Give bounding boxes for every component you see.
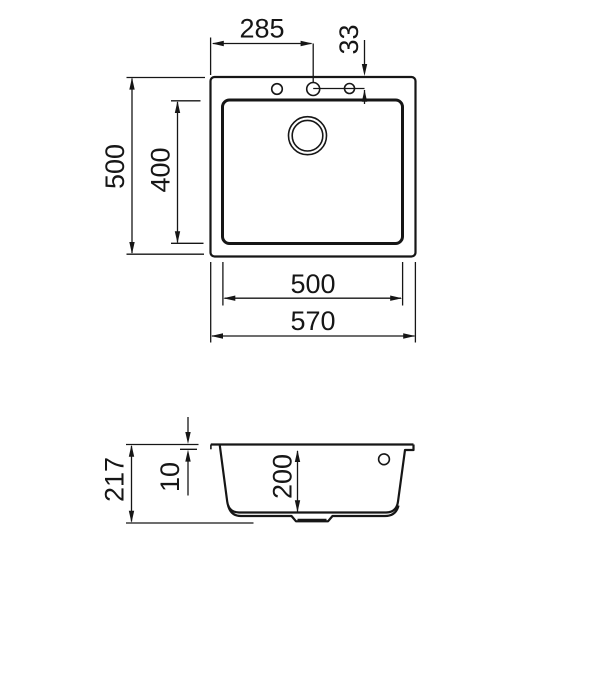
dimension-label-500-vertical: 500 (100, 144, 130, 189)
dimension-label-200: 200 (268, 454, 298, 499)
dimension-label-33: 33 (334, 24, 364, 54)
dimension-faucet-offset-y: 33 (334, 24, 367, 104)
drain-inner-circle (292, 120, 323, 151)
dimension-rim-thickness: 10 (155, 417, 197, 496)
dimension-bowl-depth-plan: 400 (146, 101, 204, 244)
sink-technical-drawing-page: 285 33 500 (0, 0, 600, 689)
drain-outer-circle (289, 117, 327, 155)
section-view: 217 10 200 (100, 417, 414, 523)
dimension-label-500-bottom: 500 (290, 269, 335, 299)
sink-outer-outline (211, 77, 416, 257)
dimension-label-10: 10 (155, 462, 185, 492)
dimension-label-285: 285 (239, 14, 284, 44)
dimension-label-217: 217 (100, 457, 130, 502)
dimension-faucet-offset-x: 285 (211, 14, 314, 84)
sink-technical-drawing: 285 33 500 (0, 0, 600, 689)
dimension-bottom-widths: 500 570 (211, 262, 416, 343)
faucet-hole-left (272, 84, 283, 95)
dimension-bowl-depth-section: 200 (268, 450, 301, 512)
dimension-label-400: 400 (146, 147, 176, 192)
plan-view: 285 33 500 (100, 14, 416, 343)
dimension-label-570: 570 (290, 306, 335, 336)
overflow-hole (379, 454, 390, 465)
